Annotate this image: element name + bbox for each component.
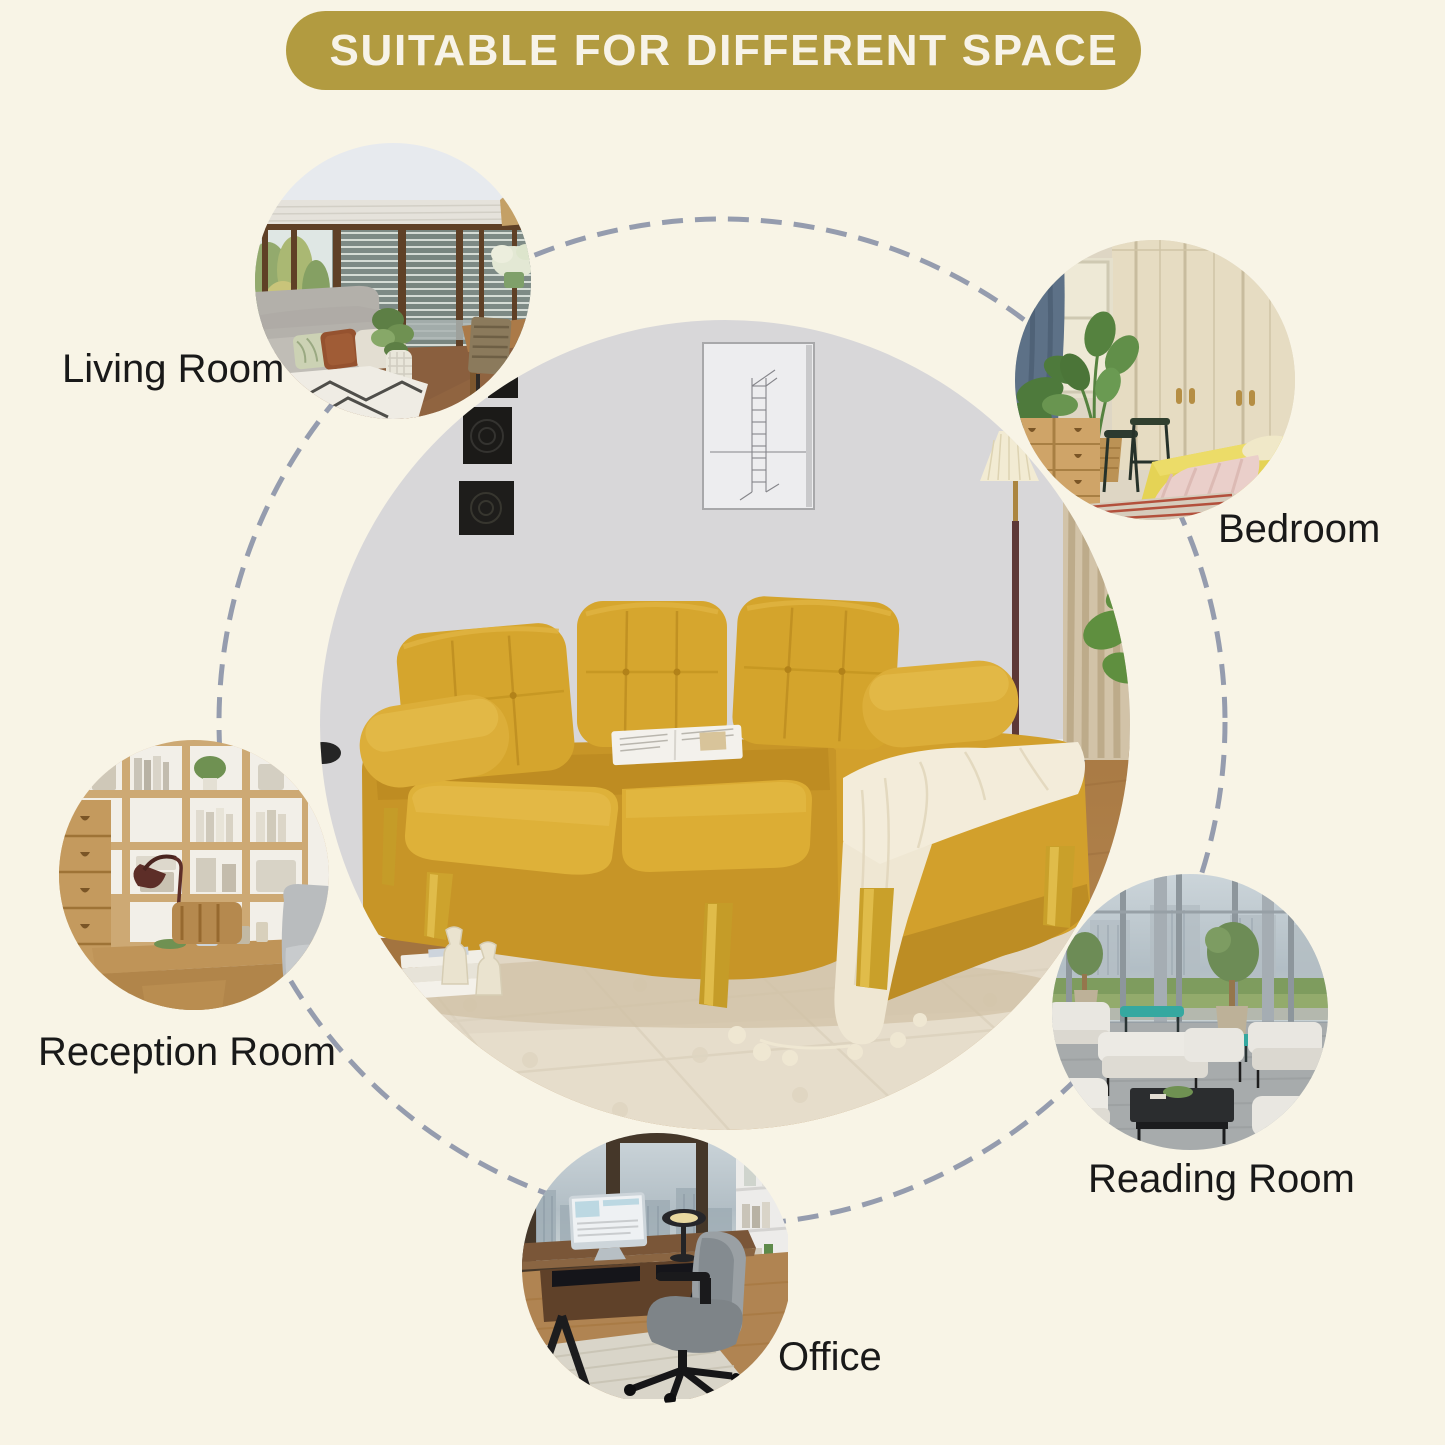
svg-text:Office: Office bbox=[778, 1335, 882, 1379]
svg-text:Reception Room: Reception Room bbox=[38, 1030, 336, 1074]
svg-text:Living Room: Living Room bbox=[62, 347, 284, 391]
svg-text:Bedroom: Bedroom bbox=[1218, 507, 1380, 551]
svg-text:SUITABLE FOR DIFFERENT SPACE: SUITABLE FOR DIFFERENT SPACE bbox=[329, 26, 1118, 75]
svg-text:Reading Room: Reading Room bbox=[1088, 1157, 1355, 1201]
